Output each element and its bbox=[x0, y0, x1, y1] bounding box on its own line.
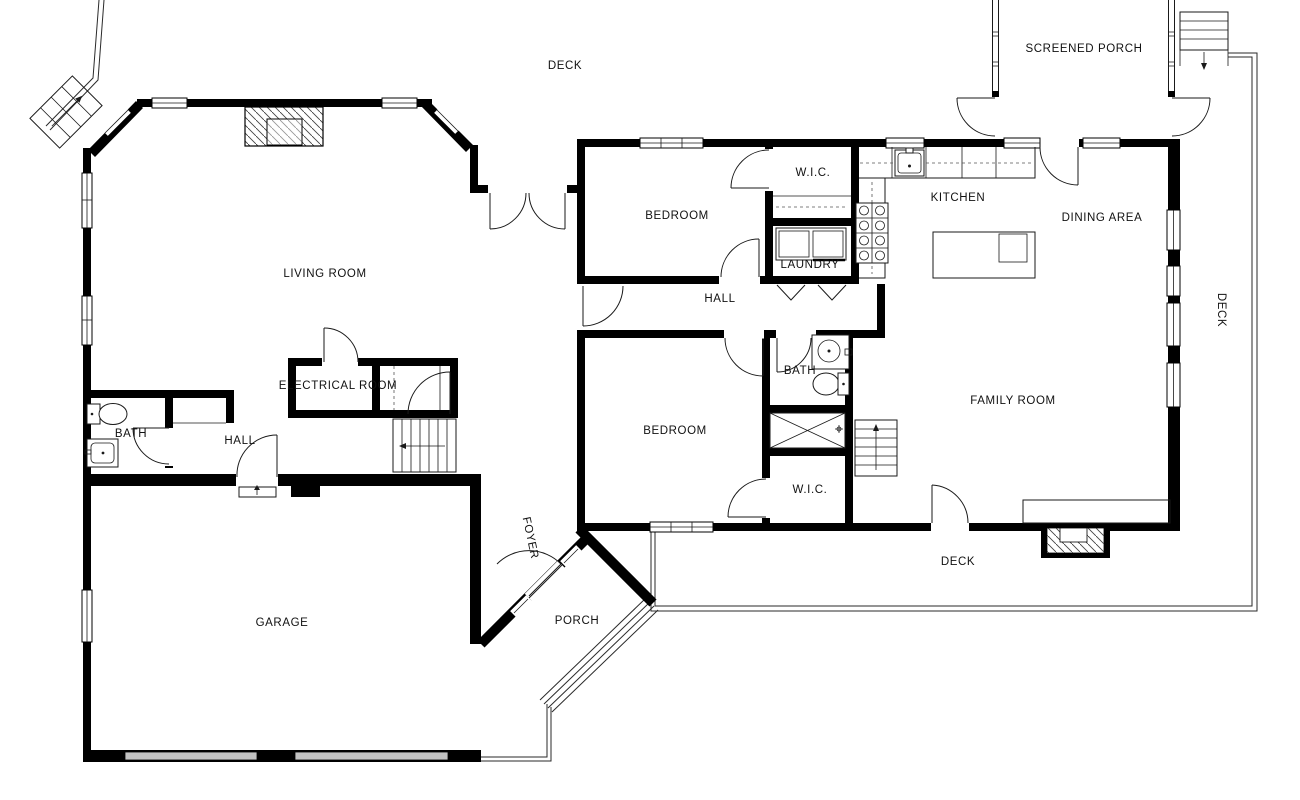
sink-center bbox=[812, 335, 852, 369]
kitchen-porch-door bbox=[1040, 147, 1078, 185]
washer-dryer bbox=[776, 228, 846, 260]
wic1-shelves bbox=[773, 196, 851, 207]
label-garage: GARAGE bbox=[256, 617, 309, 629]
electrical-door bbox=[324, 328, 358, 362]
fireplace-family bbox=[1041, 523, 1110, 558]
label-hall-left: HALL bbox=[224, 435, 255, 447]
label-kitchen: KITCHEN bbox=[931, 192, 986, 204]
floor-plan-page: DECK SCREENED PORCH BEDROOM W.I.C. KITCH… bbox=[0, 0, 1300, 800]
label-wic1: W.I.C. bbox=[796, 167, 831, 179]
french-doors-living bbox=[490, 193, 565, 229]
deck-outlines bbox=[30, 0, 1257, 761]
basement-stairs bbox=[393, 419, 456, 472]
label-hall-center: HALL bbox=[704, 293, 735, 305]
floor-plan-drawing: DECK SCREENED PORCH BEDROOM W.I.C. KITCH… bbox=[0, 0, 1300, 800]
label-deck-bottom: DECK bbox=[941, 556, 975, 568]
windows bbox=[82, 98, 1180, 642]
garage-step bbox=[239, 485, 276, 497]
sink-left bbox=[85, 439, 118, 467]
walls bbox=[83, 91, 1180, 762]
label-screened-porch: SCREENED PORCH bbox=[1025, 43, 1142, 55]
label-bedroom2: BEDROOM bbox=[643, 425, 707, 437]
label-laundry: LAUNDRY bbox=[781, 259, 840, 271]
bedroom2-wic-door bbox=[728, 479, 766, 517]
hearth bbox=[1023, 500, 1170, 523]
label-deck-top: DECK bbox=[548, 60, 582, 72]
porch-stairs bbox=[1180, 12, 1228, 70]
bedroom2-door bbox=[725, 338, 763, 376]
family-room-stairs bbox=[855, 420, 897, 476]
shower bbox=[770, 413, 845, 448]
hall-center-door bbox=[583, 286, 623, 326]
label-living-room: LIVING ROOM bbox=[283, 268, 366, 280]
label-wic2: W.I.C. bbox=[793, 484, 828, 496]
family-deck-door bbox=[932, 485, 968, 523]
toilet-left bbox=[87, 404, 127, 425]
porch-deck-door-right bbox=[1172, 98, 1210, 136]
bedroom1-door bbox=[721, 239, 759, 277]
label-deck-right: DECK bbox=[1215, 293, 1227, 327]
label-bath-left: BATH bbox=[115, 428, 147, 440]
fireplace-living bbox=[245, 107, 323, 146]
label-foyer: FOYER bbox=[520, 516, 541, 560]
label-bedroom1: BEDROOM bbox=[645, 210, 709, 222]
label-porch: PORCH bbox=[555, 615, 600, 627]
door-openings bbox=[164, 97, 1176, 614]
label-dining: DINING AREA bbox=[1062, 212, 1143, 224]
basement-stair-door bbox=[408, 372, 450, 414]
label-bath-center: BATH bbox=[784, 365, 816, 377]
stove bbox=[856, 203, 888, 263]
label-electrical-room: ELECTRICAL ROOM bbox=[279, 380, 397, 392]
porch-deck-door-left bbox=[957, 98, 995, 136]
bedroom1-wic-door bbox=[731, 150, 769, 188]
laundry-bifold-doors bbox=[777, 285, 846, 300]
kitchen-island bbox=[933, 232, 1035, 278]
kitchen-sink bbox=[895, 148, 924, 176]
label-family-room: FAMILY ROOM bbox=[970, 395, 1055, 407]
toilet-center bbox=[813, 373, 849, 395]
